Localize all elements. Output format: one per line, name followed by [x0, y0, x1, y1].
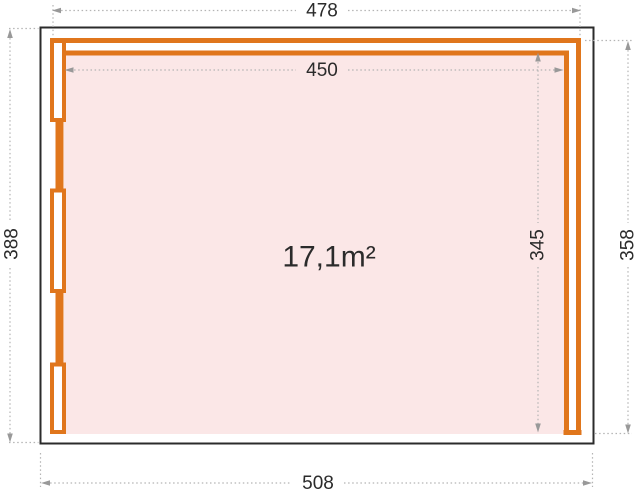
- floor-plan-page: 478 450 388 345: [0, 0, 644, 500]
- left-wall-joint-1: [56, 120, 64, 192]
- dim-358-arrow-bottom: [625, 425, 631, 434]
- dimension-top-outer: 478: [52, 1, 581, 38]
- dim-508-label: 508: [302, 473, 334, 494]
- floor-area-label: 17,1m²: [282, 241, 375, 274]
- dim-345-label: 345: [528, 229, 549, 261]
- dim-478-arrow-right: [572, 8, 581, 14]
- dimension-left: 388: [2, 29, 39, 443]
- dim-450-label: 450: [306, 60, 338, 81]
- dim-388-arrow-top: [7, 29, 13, 38]
- floor-plan-drawing: 478 450 388 345: [0, 0, 644, 500]
- dim-508-arrow-left: [41, 480, 50, 486]
- left-wall-panel-1: [52, 43, 64, 120]
- dim-478-label: 478: [306, 1, 338, 22]
- dimension-bottom: 508: [41, 453, 593, 494]
- dim-388-label: 388: [2, 228, 23, 260]
- left-wall-panel-2: [52, 191, 64, 292]
- dim-358-label: 358: [618, 229, 639, 261]
- left-wall-panel-3: [52, 365, 64, 433]
- left-wall-joint-2: [56, 291, 64, 365]
- dim-478-arrow-left: [52, 8, 61, 14]
- dim-358-arrow-top: [625, 41, 631, 50]
- dim-508-arrow-right: [583, 480, 592, 486]
- dim-388-arrow-bottom: [7, 434, 13, 443]
